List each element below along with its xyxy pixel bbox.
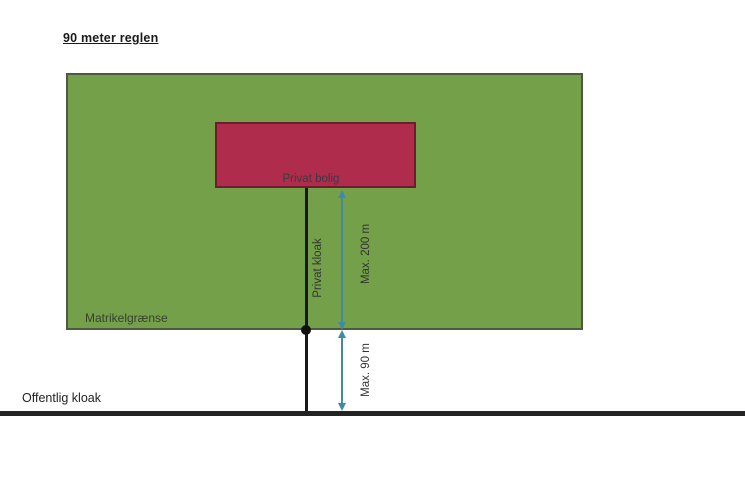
diagram-title: 90 meter reglen — [63, 31, 158, 45]
house-rect: Privat bolig — [215, 122, 416, 188]
distance-label-90m: Max. 90 m — [360, 343, 372, 397]
public-sewer-line — [0, 411, 745, 416]
distance-arrow-90m — [341, 337, 343, 404]
junction-dot — [301, 325, 311, 335]
distance-label-200m: Max. 200 m — [360, 224, 372, 284]
private-sewer-label: Privat kloak — [312, 238, 324, 297]
arrow-down-icon — [338, 403, 346, 411]
parcel-rect — [66, 73, 583, 330]
private-sewer-line — [305, 188, 308, 413]
public-sewer-label: Offentlig kloak — [22, 391, 101, 405]
parcel-boundary-label: Matrikelgrænse — [85, 311, 168, 325]
house-label: Privat bolig — [283, 173, 340, 185]
distance-arrow-200m — [341, 197, 343, 323]
arrow-down-icon — [338, 322, 346, 330]
diagram-canvas: 90 meter reglen Privat bolig Privat kloa… — [0, 0, 745, 487]
